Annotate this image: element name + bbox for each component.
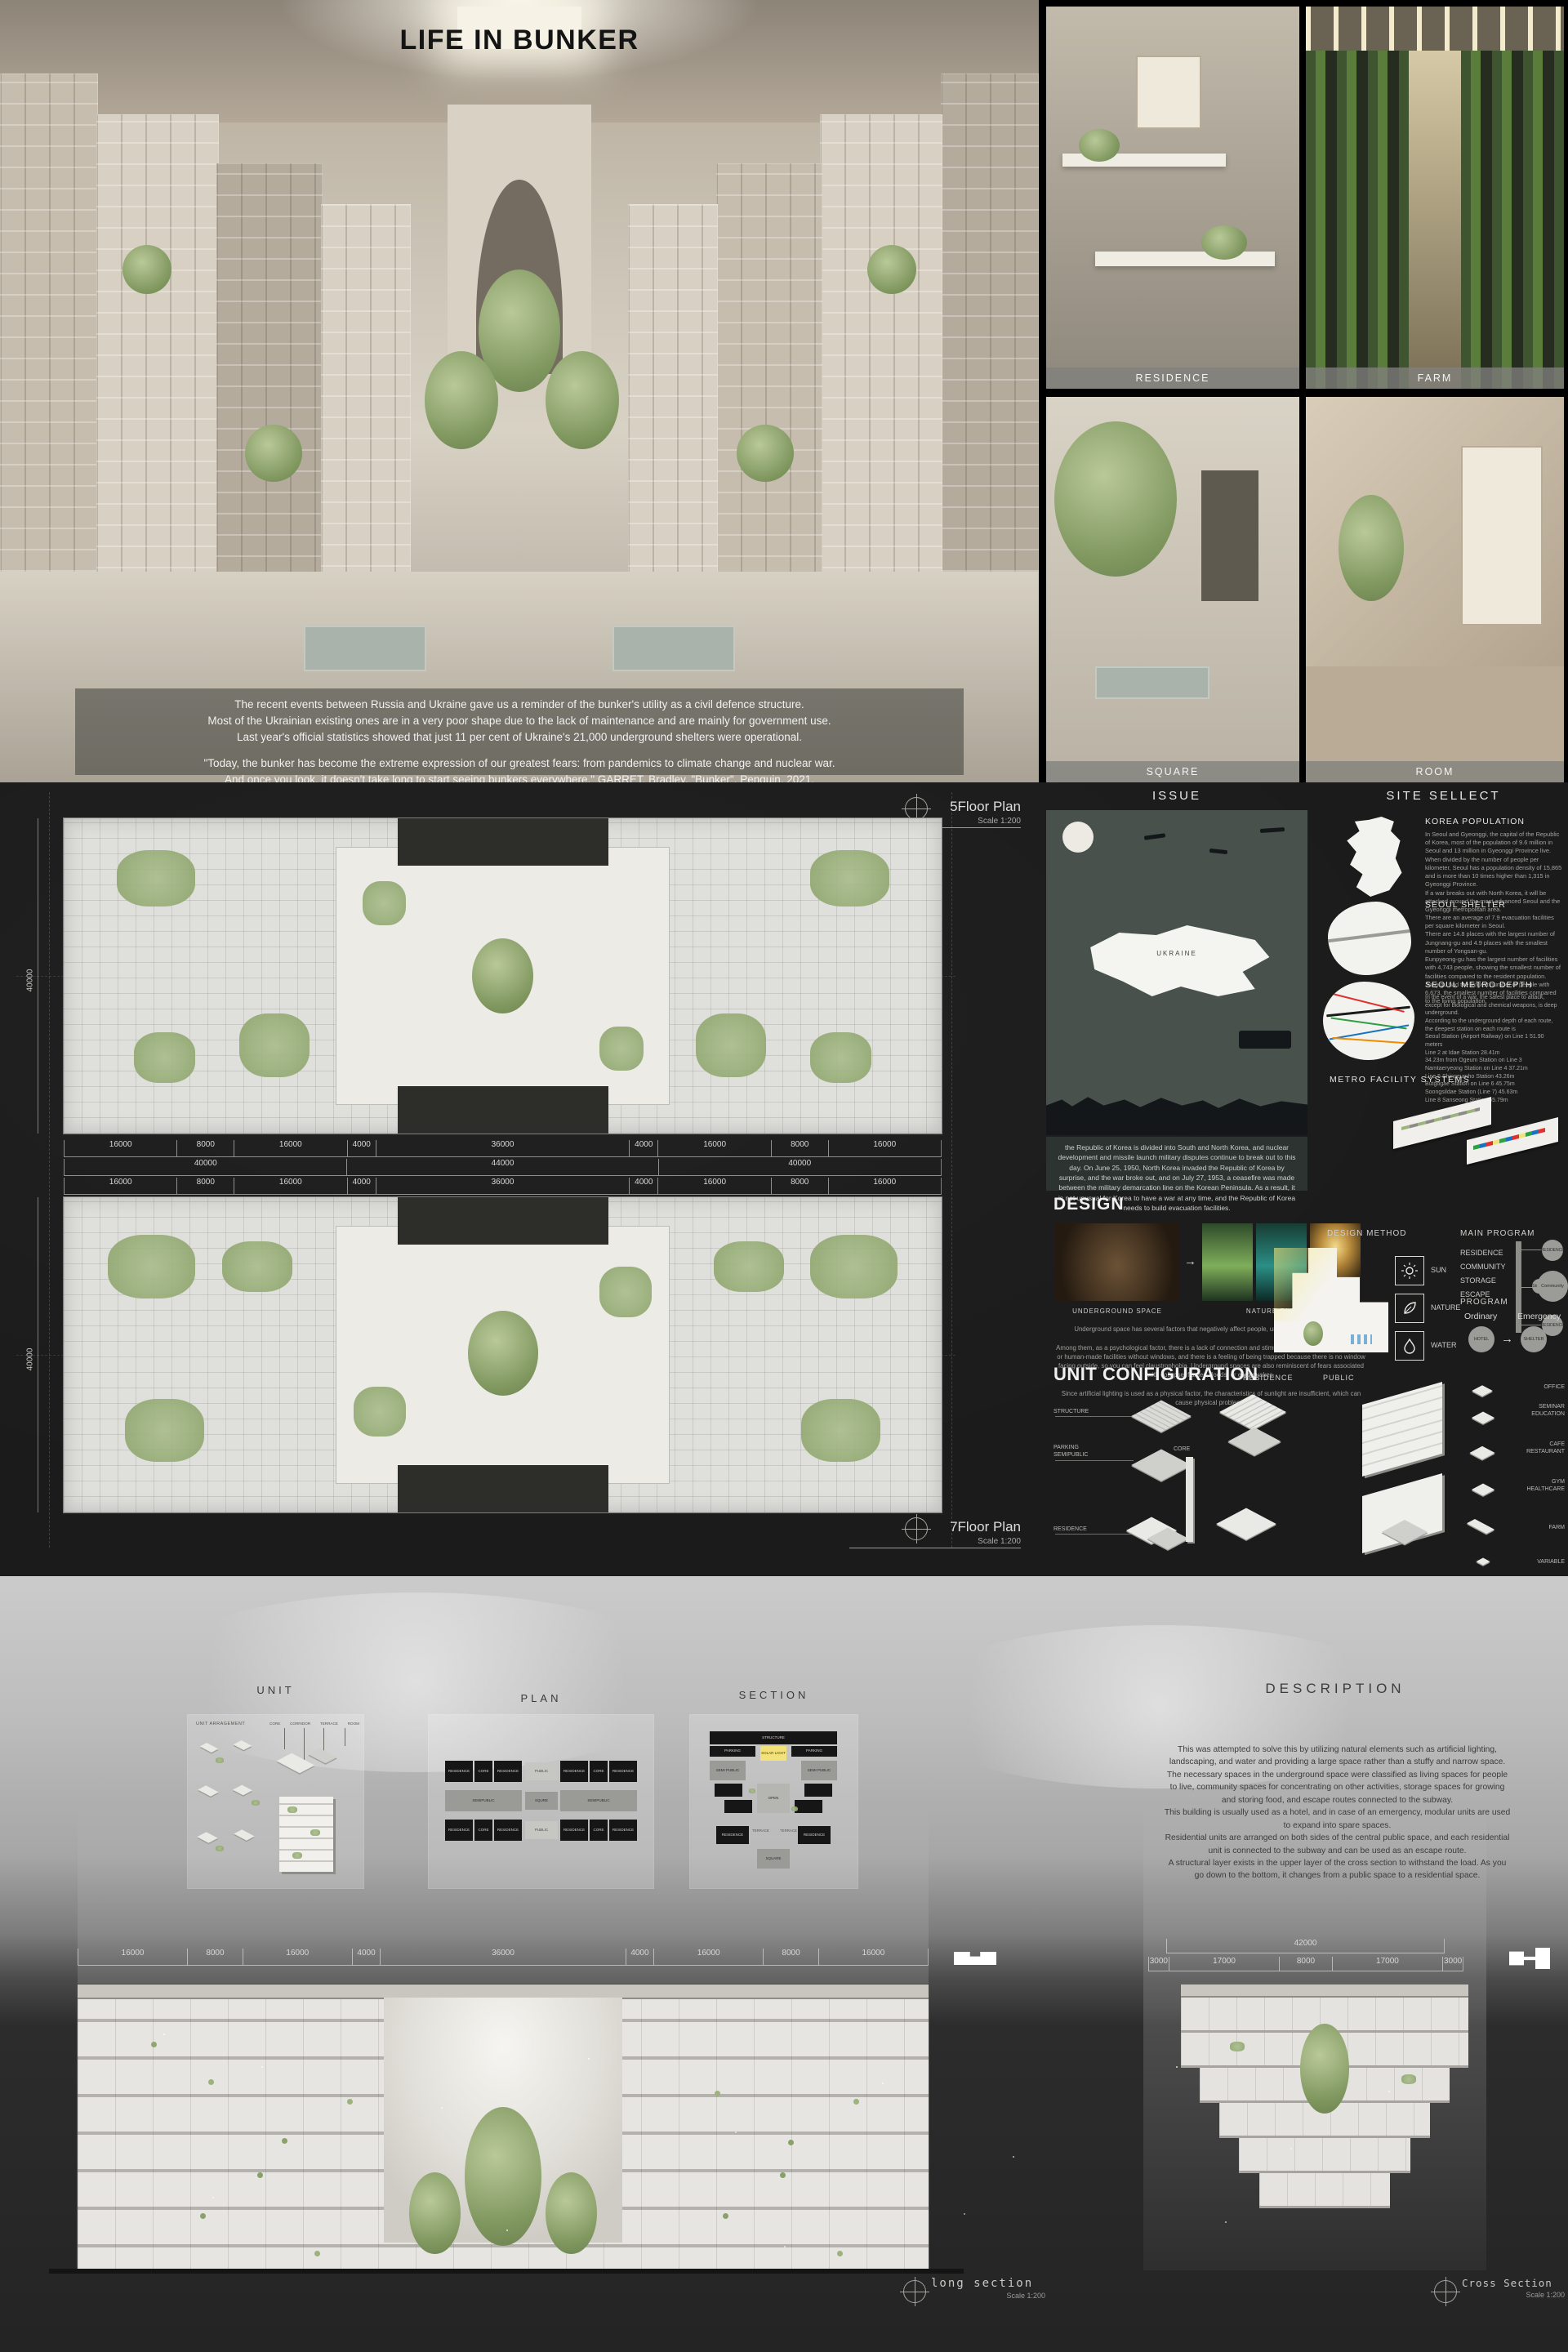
water-icon <box>1395 1331 1424 1361</box>
cross-section-dims: 3000 17000 8000 17000 3000 <box>1148 1957 1463 1971</box>
plan-public: PUBLIC <box>525 1821 558 1839</box>
guide-line <box>951 792 952 1548</box>
farm-walkway <box>1409 51 1460 389</box>
unit-panel: UNIT ARRAGEMENT CORE CORRIDOR TERRACE RO… <box>188 1715 363 1888</box>
top-section: LIFE IN BUNKER The recent events between… <box>0 0 1568 782</box>
description-body: This was attempted to solve this by util… <box>1164 1744 1511 1882</box>
key-plan-icon <box>1509 1948 1550 1969</box>
unit-part-labels: CORE CORRIDOR TERRACE ROOM <box>269 1722 359 1726</box>
unit-panel-title: UNIT <box>188 1684 363 1696</box>
leader <box>284 1728 285 1749</box>
sec-solar-light: SOLAR LIGHT <box>760 1746 786 1761</box>
uc-sub-public: PUBLIC <box>1323 1374 1355 1382</box>
long-section-dims: 16000 8000 16000 4000 36000 4000 16000 8… <box>78 1949 929 1966</box>
quote-line: "Today, the bunker has become the extrem… <box>75 755 964 772</box>
program-title: PROGRAM <box>1460 1298 1508 1307</box>
sun-icon <box>1395 1256 1424 1285</box>
nature-photo <box>1202 1223 1253 1301</box>
sec-parking: PARKING <box>791 1746 837 1757</box>
hero-render: LIFE IN BUNKER The recent events between… <box>0 0 1039 782</box>
green-patch <box>222 1241 292 1292</box>
site-header: SITE SELLECT <box>1319 789 1568 803</box>
nature-label: NATURE <box>1431 1303 1460 1312</box>
building-block <box>628 204 718 588</box>
issue-collage: UKRAINE <box>1046 810 1307 1135</box>
terrace-plant <box>245 425 302 482</box>
room-window <box>1461 446 1543 626</box>
building-block <box>716 163 822 621</box>
terrace-plant <box>737 425 794 482</box>
dim-row-1: 16000 8000 16000 4000 36000 4000 16000 8… <box>64 1140 942 1157</box>
sec-parking: PARKING <box>710 1746 755 1757</box>
main-program-title: MAIN PROGRAM <box>1460 1229 1535 1238</box>
plan-panel: RESIDENCE CORE RESIDENCE SEMIPUBLIC RESI… <box>429 1715 653 1888</box>
water-waves <box>1351 1334 1372 1344</box>
leader <box>345 1728 345 1746</box>
balcony-slab <box>1095 252 1275 266</box>
arrow-icon: → <box>1184 1254 1196 1268</box>
design-method-title: DESIGN METHOD <box>1327 1229 1406 1238</box>
intro-line: Most of the Ukrainian existing ones are … <box>75 713 964 729</box>
poster-title: LIFE IN BUNKER <box>0 24 1039 56</box>
dim-row-2: 40000 44000 40000 <box>64 1159 942 1176</box>
terrace-plant <box>122 245 171 294</box>
cross-section-label: Cross Section Scale 1:200 <box>1462 2277 1565 2299</box>
cross-green <box>1230 2042 1245 2051</box>
plan2-left-dim: 40000 <box>38 1197 38 1512</box>
uc-r-variable: VARIABLE <box>1511 1558 1565 1566</box>
plan2-title: 7Floor Plan <box>950 1519 1021 1535</box>
roof-mass <box>398 1465 608 1512</box>
plan1-title: 5Floor Plan <box>950 799 1021 814</box>
sec-square: SQUARE <box>757 1849 790 1869</box>
sec-green <box>749 1788 755 1793</box>
green-patch <box>810 1032 871 1083</box>
unit-module <box>234 1829 254 1840</box>
plan2-label: 7Floor Plan Scale 1:200 <box>849 1519 1021 1548</box>
atrium-tree <box>465 2107 541 2246</box>
section-plants <box>151 2042 157 2047</box>
tile-label-square: SQUARE <box>1046 761 1299 782</box>
square-tree <box>1054 421 1177 577</box>
main-program-list: RESIDENCE COMMUNITY STORAGE ESCAPE <box>1460 1246 1506 1302</box>
sec-open: OPEN <box>757 1784 790 1813</box>
plan-core: CORE <box>590 1820 608 1841</box>
underground-photo <box>1055 1223 1179 1301</box>
aircraft-silhouette <box>1144 833 1165 840</box>
dim-row-3: 16000 8000 16000 4000 36000 4000 16000 8… <box>64 1178 942 1195</box>
leader-line <box>1055 1534 1134 1535</box>
green-patch <box>134 1032 195 1083</box>
nature-icon <box>1395 1294 1424 1323</box>
uc-r-cafe: CAFE RESTAURANT <box>1511 1441 1565 1455</box>
plan-residence: RESIDENCE <box>560 1820 588 1841</box>
building-block <box>321 204 411 588</box>
design-method-diagram <box>1274 1248 1388 1352</box>
cross-tree <box>1300 2024 1349 2114</box>
balcony-plant <box>1201 225 1247 260</box>
issue-header: ISSUE <box>1046 789 1307 803</box>
green-patch <box>239 1013 310 1076</box>
plan-residence: RESIDENCE <box>494 1820 522 1841</box>
cross-roof <box>1181 1984 1468 1998</box>
courtyard-tree <box>468 1311 538 1396</box>
intro-line: The recent events between Russia and Ukr… <box>75 697 964 713</box>
intro-text-overlay: The recent events between Russia and Ukr… <box>75 688 964 775</box>
program-arrow: → <box>1501 1332 1513 1346</box>
metro-facility-diagram <box>1388 1086 1564 1188</box>
cross-section-drawing <box>1181 1984 1468 2208</box>
uc-label-core: CORE <box>1174 1445 1190 1453</box>
bubble-community: Community <box>1537 1271 1568 1302</box>
doorway <box>1201 470 1258 601</box>
section-diagram: STRUCTURE PARKING SOLAR LIGHT PARKING SE… <box>710 1731 837 1872</box>
plan2-scale: Scale 1:200 <box>849 1537 1021 1546</box>
section-panel-title: SECTION <box>690 1689 857 1701</box>
tower-green <box>292 1852 302 1859</box>
roof-mass <box>398 1197 608 1245</box>
unit-module <box>234 1740 252 1750</box>
seoul-map <box>1328 902 1411 975</box>
site-title-2: SEOUL SHELTER <box>1425 900 1562 910</box>
tile-label-farm: FARM <box>1306 367 1564 389</box>
axis-mark <box>1434 2280 1457 2303</box>
roof-mass <box>398 1086 608 1134</box>
green-patch <box>363 881 407 925</box>
aircraft-silhouette <box>1209 849 1227 854</box>
sec-step <box>724 1800 752 1813</box>
leader <box>323 1728 324 1753</box>
green-patch <box>108 1235 196 1298</box>
indoor-plant <box>1339 495 1404 601</box>
tile-label-room: ROOM <box>1306 761 1564 782</box>
uc-r-office: OFFICE <box>1511 1383 1565 1391</box>
cross-floor <box>1239 2138 1410 2173</box>
green-patch <box>810 1235 898 1298</box>
long-section-drawing <box>78 1984 929 2269</box>
sec-residence: RESIDENCE <box>716 1826 749 1844</box>
floor-plan-5 <box>64 818 942 1134</box>
section-panel: STRUCTURE PARKING SOLAR LIGHT PARKING SE… <box>690 1715 857 1888</box>
unit-axon-top2 <box>308 1748 336 1764</box>
uc-label-parking: PARKING SEMIPUBLIC <box>1053 1444 1088 1459</box>
uc-sub-residence: RESIDENCE <box>1243 1374 1294 1382</box>
ukraine-map: UKRAINE <box>1074 898 1280 1021</box>
green-patch <box>714 1241 784 1292</box>
plan-diagram: RESIDENCE CORE RESIDENCE SEMIPUBLIC RESI… <box>445 1761 637 1842</box>
link-line <box>1521 1325 1543 1325</box>
sec-terrace: TERRACE <box>752 1829 769 1833</box>
sec-structure: STRUCTURE <box>710 1731 837 1744</box>
bubble-residence-top: RESIDENCE <box>1542 1240 1563 1261</box>
ordinary-label: Ordinary <box>1464 1312 1497 1321</box>
plan-residence: RESIDENCE <box>445 1820 473 1841</box>
star-speckles <box>163 2033 165 2035</box>
core-axon <box>1186 1457 1193 1542</box>
link-line <box>1521 1287 1533 1288</box>
key-plan-icon <box>954 1952 996 1965</box>
bottom-section: UNIT PLAN SECTION UNIT ARRAGEMENT CORE C… <box>0 1576 1568 2352</box>
unit-axon-top <box>277 1753 315 1774</box>
unit-config-header: UNIT CONFIGURATION <box>1053 1364 1258 1385</box>
site-title-1: KOREA POPULATION <box>1425 817 1562 826</box>
render-room: ROOM <box>1306 397 1564 782</box>
cross-green <box>1401 2074 1416 2084</box>
link-line <box>1521 1249 1543 1250</box>
atrium-tree <box>409 2172 461 2254</box>
uc-r-farm: FARM <box>1511 1524 1565 1531</box>
square-pool <box>1095 666 1209 699</box>
ukraine-label: UKRAINE <box>1074 950 1280 957</box>
leader-line <box>1055 1460 1134 1461</box>
crowd-silhouette <box>1046 1093 1307 1135</box>
cross-total-dim: 42000 <box>1166 1939 1445 1953</box>
render-square: SQUARE <box>1046 397 1299 782</box>
underground-caption: UNDERGROUND SPACE <box>1055 1307 1179 1315</box>
unit-module <box>197 1832 217 1842</box>
tree <box>425 351 498 449</box>
guide-line <box>49 792 50 1548</box>
reflecting-pool <box>612 626 735 671</box>
plan-squre: SQURE <box>525 1792 558 1810</box>
grow-lights <box>1306 7 1564 51</box>
intro-line: Last year's official statistics showed t… <box>75 729 964 746</box>
leader <box>304 1728 305 1761</box>
plan-core: CORE <box>590 1761 608 1782</box>
unit-green <box>216 1846 224 1851</box>
tile-label-residence: RESIDENCE <box>1046 367 1299 389</box>
window <box>1136 56 1201 129</box>
program-bubble-diagram: RESIDENCE Storage Community RESIDENCE <box>1516 1238 1566 1339</box>
courtyard-tree <box>472 938 533 1014</box>
moon <box>1062 822 1094 853</box>
plan-residence: RESIDENCE <box>609 1820 637 1841</box>
sec-semipublic: SEMI PUBLIC <box>801 1761 837 1780</box>
plan-public: PUBLIC <box>525 1762 558 1780</box>
render-farm: FARM <box>1306 7 1564 389</box>
tree <box>546 351 619 449</box>
shelter-bubble: SHELTER <box>1521 1326 1547 1352</box>
unit-green <box>216 1757 224 1763</box>
long-section-label: long section Scale 1:200 <box>931 2277 1045 2300</box>
description-title: DESCRIPTION <box>1160 1681 1511 1697</box>
emergency-label: Emergency <box>1517 1312 1561 1321</box>
tower-green <box>310 1829 320 1836</box>
plan-residence: RESIDENCE <box>494 1761 522 1782</box>
sec-step <box>804 1784 832 1797</box>
plan-semipublic: SEMIPUBLIC <box>560 1790 637 1811</box>
site-title-3: SEOUL METRO DEPTH <box>1425 980 1562 990</box>
issue-caption: the Republic of Korea is divided into So… <box>1046 1137 1307 1191</box>
uc-label-residence: RESIDENCE <box>1053 1526 1087 1533</box>
metro-systems-label: METRO FACILITY SYSTEMS <box>1330 1075 1470 1085</box>
green-patch <box>599 1267 653 1317</box>
sec-terrace: TERRACE <box>780 1829 797 1833</box>
building-block <box>216 163 323 621</box>
plan-core: CORE <box>474 1820 492 1841</box>
helicopter-silhouette <box>1260 827 1285 833</box>
green-patch <box>125 1399 204 1462</box>
han-river <box>1328 929 1411 943</box>
uc-r-gym: GYM HEALTHCARE <box>1511 1478 1565 1493</box>
ground-line <box>49 2269 964 2274</box>
tower-green <box>287 1806 297 1813</box>
plan-core: CORE <box>474 1761 492 1782</box>
sec-residence: RESIDENCE <box>798 1826 831 1844</box>
sec-step <box>715 1784 742 1797</box>
uc-label-structure: STRUCTURE <box>1053 1408 1089 1415</box>
plan-residence: RESIDENCE <box>560 1761 588 1782</box>
reflecting-pool <box>304 626 426 671</box>
green-patch <box>117 850 196 906</box>
terrace-plant <box>867 245 916 294</box>
metro-line <box>1332 1037 1405 1044</box>
sun-beam <box>1274 1248 1354 1321</box>
axis-mark <box>903 2280 926 2303</box>
design-header: DESIGN <box>1053 1195 1125 1214</box>
water-label: WATER <box>1431 1341 1457 1349</box>
green-patch <box>696 1013 766 1076</box>
sec-green <box>791 1806 798 1811</box>
green-patch <box>354 1387 407 1437</box>
floor-plan-7 <box>64 1197 942 1512</box>
sec-semipublic: SEMI PUBLIC <box>710 1761 746 1780</box>
green-patch <box>801 1399 880 1462</box>
quote-line: And once you look, it doesn't take long … <box>75 772 964 782</box>
balcony-plant <box>1079 129 1120 162</box>
unit-module <box>233 1785 252 1796</box>
atrium-tree <box>546 2172 597 2254</box>
unit-module <box>198 1785 218 1796</box>
leader-line <box>1055 1416 1134 1417</box>
roof-mass <box>398 818 608 866</box>
green-patch <box>810 850 889 906</box>
plan-panel-title: PLAN <box>429 1692 653 1704</box>
uc-r-seminar: SEMINAR EDUCATION <box>1511 1403 1565 1418</box>
plan-semipublic: SEMIPUBLIC <box>445 1790 522 1811</box>
tank-silhouette <box>1239 1031 1291 1049</box>
sun-label: SUN <box>1431 1266 1446 1274</box>
hotel-bubble: HOTEL <box>1468 1326 1494 1352</box>
plan-residence: RESIDENCE <box>445 1761 473 1782</box>
green-patch <box>599 1027 644 1071</box>
sec-step <box>795 1800 822 1813</box>
plan1-left-dim: 40000 <box>38 818 38 1134</box>
cross-floor <box>1259 2173 1390 2208</box>
unit-module <box>200 1743 219 1753</box>
unit-green <box>252 1800 260 1806</box>
unit-arrangement-label: UNIT ARRAGEMENT <box>196 1722 245 1726</box>
plan-residence: RESIDENCE <box>609 1761 637 1782</box>
render-residence: RESIDENCE <box>1046 7 1299 389</box>
